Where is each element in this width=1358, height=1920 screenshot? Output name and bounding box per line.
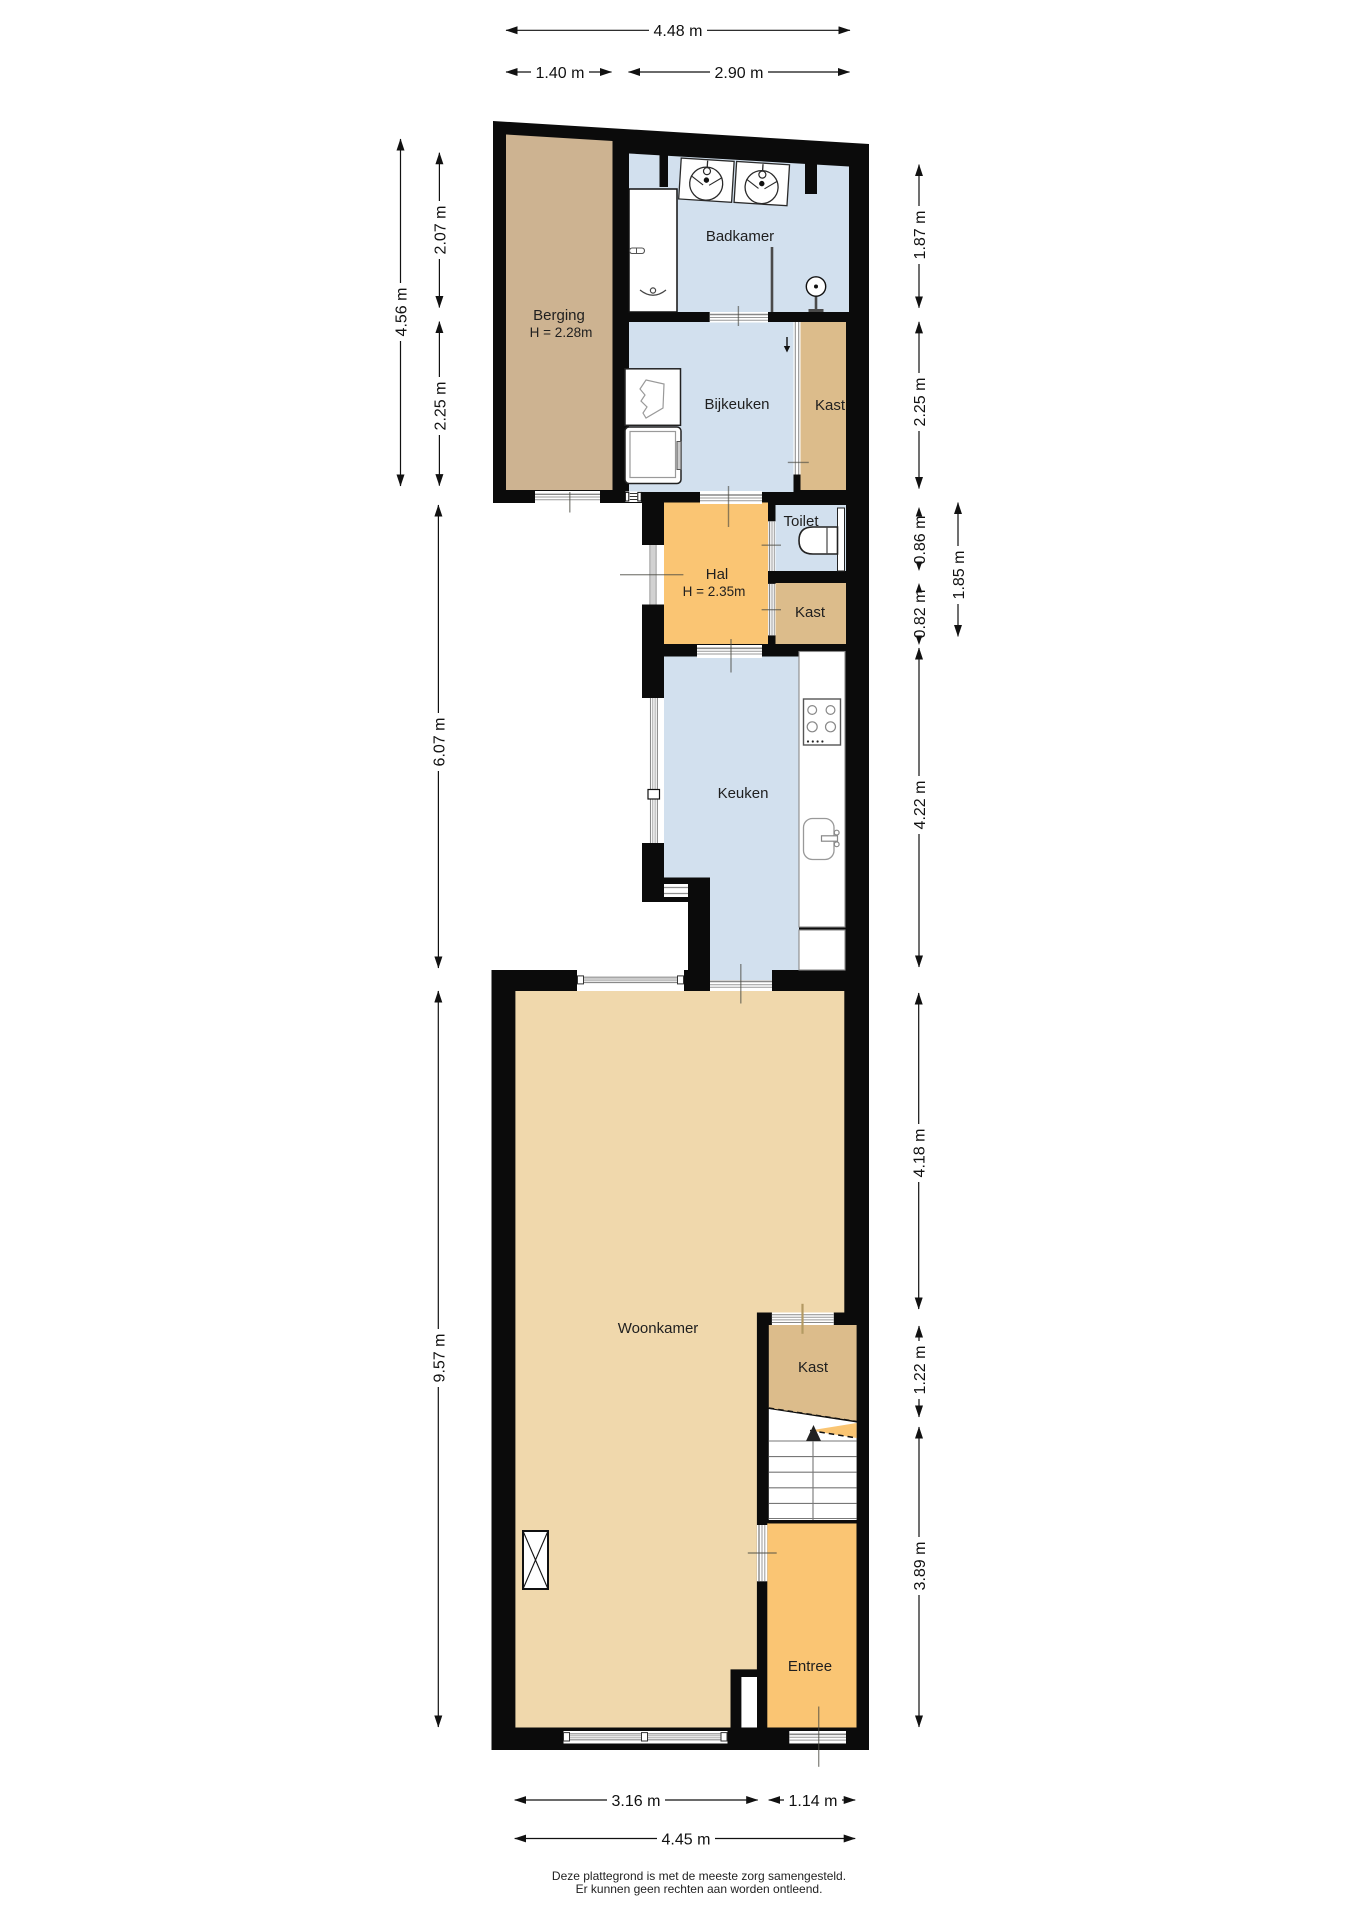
svg-text:Badkamer: Badkamer xyxy=(706,228,774,245)
svg-text:Er kunnen geen rechten aan wor: Er kunnen geen rechten aan worden ontlee… xyxy=(576,1882,823,1896)
svg-text:1.85 m: 1.85 m xyxy=(951,551,968,600)
svg-text:2.07 m: 2.07 m xyxy=(432,206,449,255)
svg-text:3.89 m: 3.89 m xyxy=(912,1542,929,1591)
svg-text:H = 2.35m: H = 2.35m xyxy=(683,584,746,599)
svg-text:1.22 m: 1.22 m xyxy=(912,1346,929,1395)
svg-text:Kast: Kast xyxy=(798,1359,829,1376)
svg-text:Keuken: Keuken xyxy=(718,785,769,802)
svg-text:2.25 m: 2.25 m xyxy=(432,382,449,431)
svg-text:H = 2.28m: H = 2.28m xyxy=(530,325,593,340)
svg-text:Berging: Berging xyxy=(533,307,585,324)
svg-text:Woonkamer: Woonkamer xyxy=(618,1320,699,1337)
svg-text:Bijkeuken: Bijkeuken xyxy=(704,396,769,413)
svg-text:6.07 m: 6.07 m xyxy=(431,718,448,767)
svg-text:1.87 m: 1.87 m xyxy=(912,211,929,260)
svg-text:2.25 m: 2.25 m xyxy=(912,378,929,427)
svg-text:Kast: Kast xyxy=(815,397,846,414)
svg-text:0.86 m: 0.86 m xyxy=(912,516,929,565)
svg-text:2.90 m: 2.90 m xyxy=(715,65,764,82)
svg-text:4.45 m: 4.45 m xyxy=(662,1831,711,1848)
svg-text:1.40 m: 1.40 m xyxy=(536,65,585,82)
svg-text:Entree: Entree xyxy=(788,1658,832,1675)
svg-text:3.16 m: 3.16 m xyxy=(612,1793,661,1810)
svg-text:1.14 m: 1.14 m xyxy=(789,1793,838,1810)
svg-text:4.56 m: 4.56 m xyxy=(394,288,411,337)
svg-text:Deze plattegrond is met de mee: Deze plattegrond is met de meeste zorg s… xyxy=(552,1869,846,1883)
svg-text:Hal: Hal xyxy=(706,566,729,583)
svg-text:Kast: Kast xyxy=(795,604,826,621)
svg-text:9.57 m: 9.57 m xyxy=(431,1334,448,1383)
svg-text:Toilet: Toilet xyxy=(783,513,819,530)
svg-text:0.82 m: 0.82 m xyxy=(912,590,929,639)
svg-text:4.18 m: 4.18 m xyxy=(912,1129,929,1178)
svg-text:4.48 m: 4.48 m xyxy=(654,23,703,40)
svg-text:4.22 m: 4.22 m xyxy=(912,781,929,830)
